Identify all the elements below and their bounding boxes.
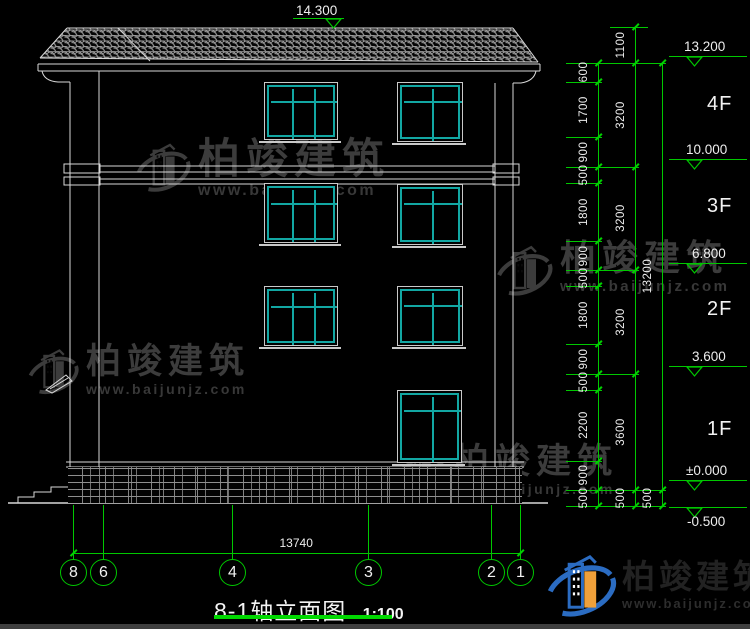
dimension-chain-line: [662, 63, 663, 506]
window-transom: [271, 306, 337, 308]
window-mullion: [432, 293, 434, 345]
window-transom: [404, 101, 462, 103]
window: [264, 286, 338, 346]
elevation-value: 10.000: [686, 142, 727, 157]
roof-outline: [38, 28, 540, 83]
dimension-value: 3200: [614, 290, 628, 354]
elevation-triangle-icon: [686, 264, 704, 275]
window-frame: [267, 85, 335, 137]
elevation-value: 14.300: [296, 3, 337, 18]
drawing-title: 8-1轴立面图: [214, 592, 346, 626]
dimension-value: 500: [577, 466, 591, 530]
elevation-line: [669, 263, 747, 264]
dimension-value: 500: [641, 466, 655, 530]
elevation-line: [669, 159, 747, 160]
dimension-value: 3600: [614, 400, 628, 464]
window-mullion: [432, 397, 434, 462]
dimension-value: 500: [614, 466, 628, 530]
window-frame: [400, 187, 460, 242]
stone-plinth: [68, 467, 522, 503]
elevation-triangle-icon: [686, 57, 704, 68]
floor-label: 1F: [707, 418, 732, 441]
elevation-line: [669, 507, 747, 508]
window-mullion: [292, 190, 294, 242]
window-sill: [259, 347, 341, 349]
window-sill: [259, 141, 341, 143]
window-frame: [267, 289, 335, 343]
elevation-triangle-icon: [686, 367, 704, 378]
axis-bubble: 3: [355, 559, 382, 586]
window-mullion: [314, 89, 316, 139]
dimension-value: 3200: [614, 83, 628, 147]
window-transom: [404, 203, 462, 205]
window-mullion: [292, 89, 294, 139]
axis-grid-stub: [491, 505, 492, 559]
elevation-triangle-icon: [686, 481, 704, 492]
axis-grid-stub: [368, 505, 369, 559]
elevation-line: [669, 366, 747, 367]
brand-logo-url: www.baijunjz.com: [622, 596, 750, 611]
axis-bubble: 4: [219, 559, 246, 586]
window-mullion: [292, 293, 294, 345]
axis-bubble: 6: [90, 559, 117, 586]
window-sill: [392, 246, 466, 248]
window-mullion: [314, 293, 316, 345]
bottom-dimension-value: 13740: [280, 536, 313, 550]
window-sill: [259, 244, 341, 246]
window-frame: [267, 186, 335, 240]
window: [264, 82, 338, 140]
axis-grid-stub: [103, 505, 104, 559]
axis-bubble: 2: [478, 559, 505, 586]
bottom-dimension-line: [73, 553, 520, 554]
building-outline: [0, 0, 750, 629]
brand-logo: 柏竣建筑 www.baijunjz.com: [544, 548, 750, 622]
side-canopy: [46, 375, 72, 393]
window: [397, 286, 463, 346]
window: [397, 82, 463, 142]
axis-bubble: 1: [507, 559, 534, 586]
window-sill: [392, 347, 466, 349]
window-transom: [404, 410, 461, 412]
window-frame: [400, 289, 460, 343]
elevation-line: [669, 56, 747, 57]
axis-bubble: 8: [60, 559, 87, 586]
window: [397, 184, 463, 245]
entry-steps: [8, 487, 70, 503]
floor-label: 4F: [707, 93, 732, 116]
brand-logo-text: 柏竣建筑: [622, 560, 750, 593]
drawing-title-block: 8-1轴立面图 1:100: [214, 592, 404, 626]
elevation-line: [669, 480, 747, 481]
elevation-value: -0.500: [687, 514, 725, 529]
window-mullion: [432, 89, 434, 141]
window: [397, 390, 462, 463]
elevation-value: 13.200: [684, 39, 725, 54]
dimension-value: 3200: [614, 186, 628, 250]
title-underline: [214, 615, 392, 619]
elevation-value: 6.800: [692, 246, 726, 261]
window-mullion: [432, 191, 434, 244]
dimension-value: 13200: [641, 244, 655, 308]
window-transom: [271, 203, 337, 205]
window: [264, 183, 338, 243]
brand-logo-icon: [544, 548, 618, 622]
axis-grid-stub: [232, 505, 233, 559]
elevation-triangle-icon: [325, 19, 343, 30]
elevation-value: ±0.000: [686, 463, 727, 478]
window-transom: [404, 305, 462, 307]
window-frame: [400, 85, 460, 139]
bottom-border-bar: [0, 624, 750, 629]
window-transom: [271, 101, 337, 103]
elevation-value: 3.600: [692, 349, 726, 364]
window-sill: [392, 143, 466, 145]
window-mullion: [314, 190, 316, 242]
dimension-value: 1100: [614, 13, 628, 77]
cad-drawing-canvas: 柏竣建筑www.baijunjz.com 柏竣建筑www.baijunjz.co…: [0, 0, 750, 629]
window-sill: [392, 464, 465, 466]
floor-label: 3F: [707, 195, 732, 218]
window-frame: [400, 393, 459, 460]
belt-course: [64, 164, 519, 185]
elevation-triangle-icon: [686, 160, 704, 171]
floor-label: 2F: [707, 298, 732, 321]
